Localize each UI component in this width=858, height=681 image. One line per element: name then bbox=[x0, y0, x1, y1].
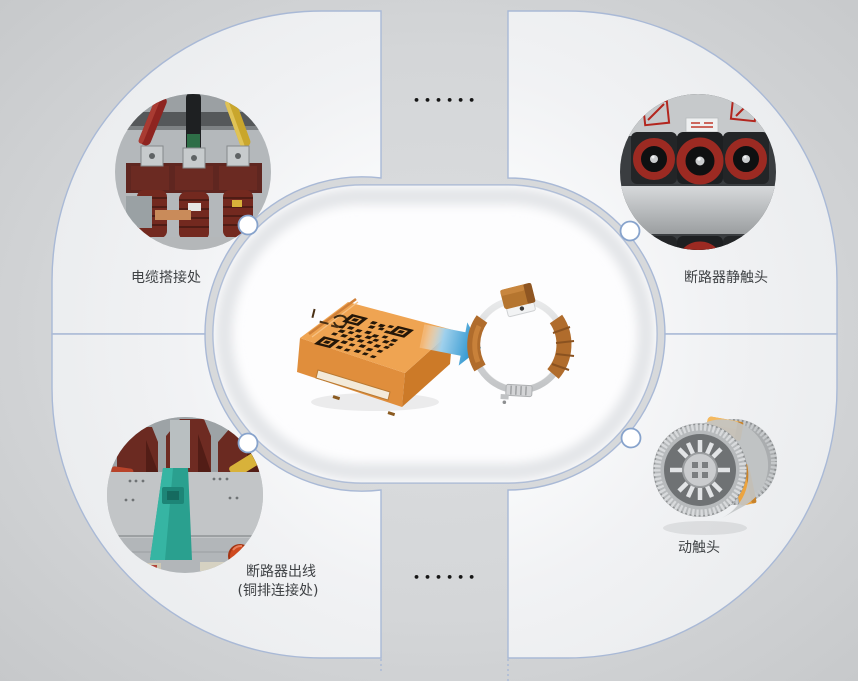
label-breaker-outlet-line1: 断路器出线 bbox=[246, 564, 316, 580]
label-cable-joint: 电缆搭接处 bbox=[131, 269, 201, 286]
diagram-canvas: •••••• •••••• 电缆搭接处 断路器静触头 断路器出线 (铜排连接处)… bbox=[0, 0, 858, 681]
insulators bbox=[137, 190, 253, 240]
separator-dots-bottom: •••••• bbox=[413, 571, 479, 584]
connector-dot-bottom-right bbox=[622, 429, 641, 448]
separator-dots-top: •••••• bbox=[413, 94, 479, 107]
switchgear-sensor-installation-diagram: •••••• •••••• 电缆搭接处 断路器静触头 断路器出线 (铜排连接处)… bbox=[0, 0, 858, 681]
label-breaker-outlet-line2: (铜排连接处) bbox=[238, 582, 319, 599]
connector-dot-top-left bbox=[239, 216, 258, 235]
label-moving-contact: 动触头 bbox=[678, 540, 720, 556]
connector-dot-bottom-left bbox=[239, 434, 258, 453]
connector-dot-top-right bbox=[621, 222, 640, 241]
cable-black-green bbox=[186, 92, 201, 154]
label-breaker-static-contact: 断路器静触头 bbox=[684, 270, 768, 286]
